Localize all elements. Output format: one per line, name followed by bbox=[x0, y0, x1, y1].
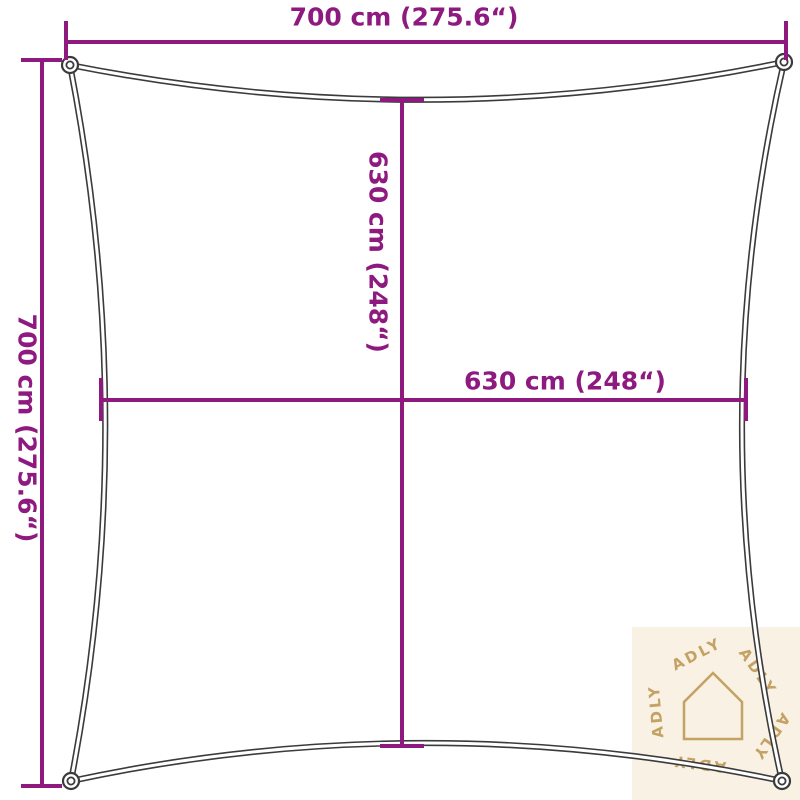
sail-outline bbox=[70, 62, 784, 781]
shade-sail-dimension-diagram: ADLY ADLY ADLY ADLY ADLY bbox=[0, 0, 800, 800]
corner-ring-bottom-right bbox=[774, 773, 790, 789]
corner-ring-bottom-left bbox=[63, 773, 79, 789]
dimension-label-left-height: 700 cm (275.6“) bbox=[13, 314, 42, 543]
dimension-label-inner-width: 630 cm (248“) bbox=[464, 367, 666, 396]
dimension-label-top-width: 700 cm (275.6“) bbox=[290, 3, 519, 32]
sail-diagram-svg bbox=[0, 0, 800, 800]
dimension-label-inner-height: 630 cm (248“) bbox=[364, 151, 393, 353]
